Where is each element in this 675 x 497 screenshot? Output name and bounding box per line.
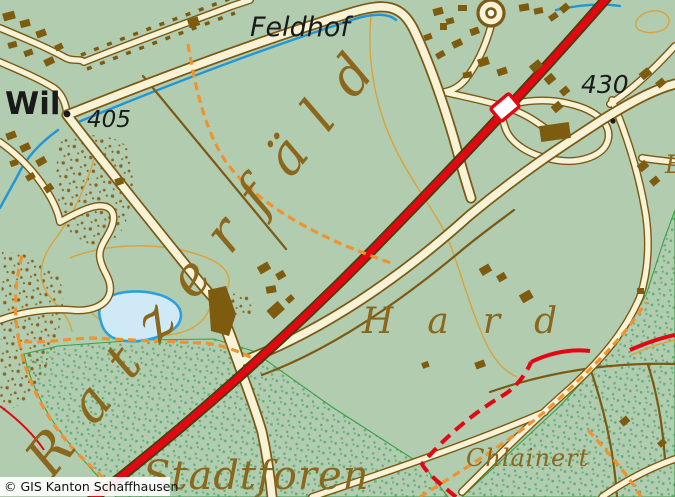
settlement-dot-wil (64, 111, 71, 118)
label-wil: Wil (5, 86, 60, 122)
label-height-405: 405 (87, 107, 131, 133)
roundabout-symbol (478, 0, 504, 26)
label-height-430: 430 (581, 70, 629, 99)
label-chlainert: Chlainert (466, 444, 589, 472)
attribution-bar: © GIS Kanton Schaffhausen (0, 477, 178, 496)
label-hard: Hard (361, 301, 591, 342)
label-feldhof: Feldhof (250, 12, 353, 43)
topographic-map-viewport[interactable]: Wil Feldhof 405 430 Ratzerfäld Hard Stad… (0, 0, 675, 497)
spot-height-dot-430 (610, 118, 615, 123)
attribution-text: © GIS Kanton Schaffhausen (4, 479, 178, 494)
label-partial-east: E (664, 150, 675, 179)
